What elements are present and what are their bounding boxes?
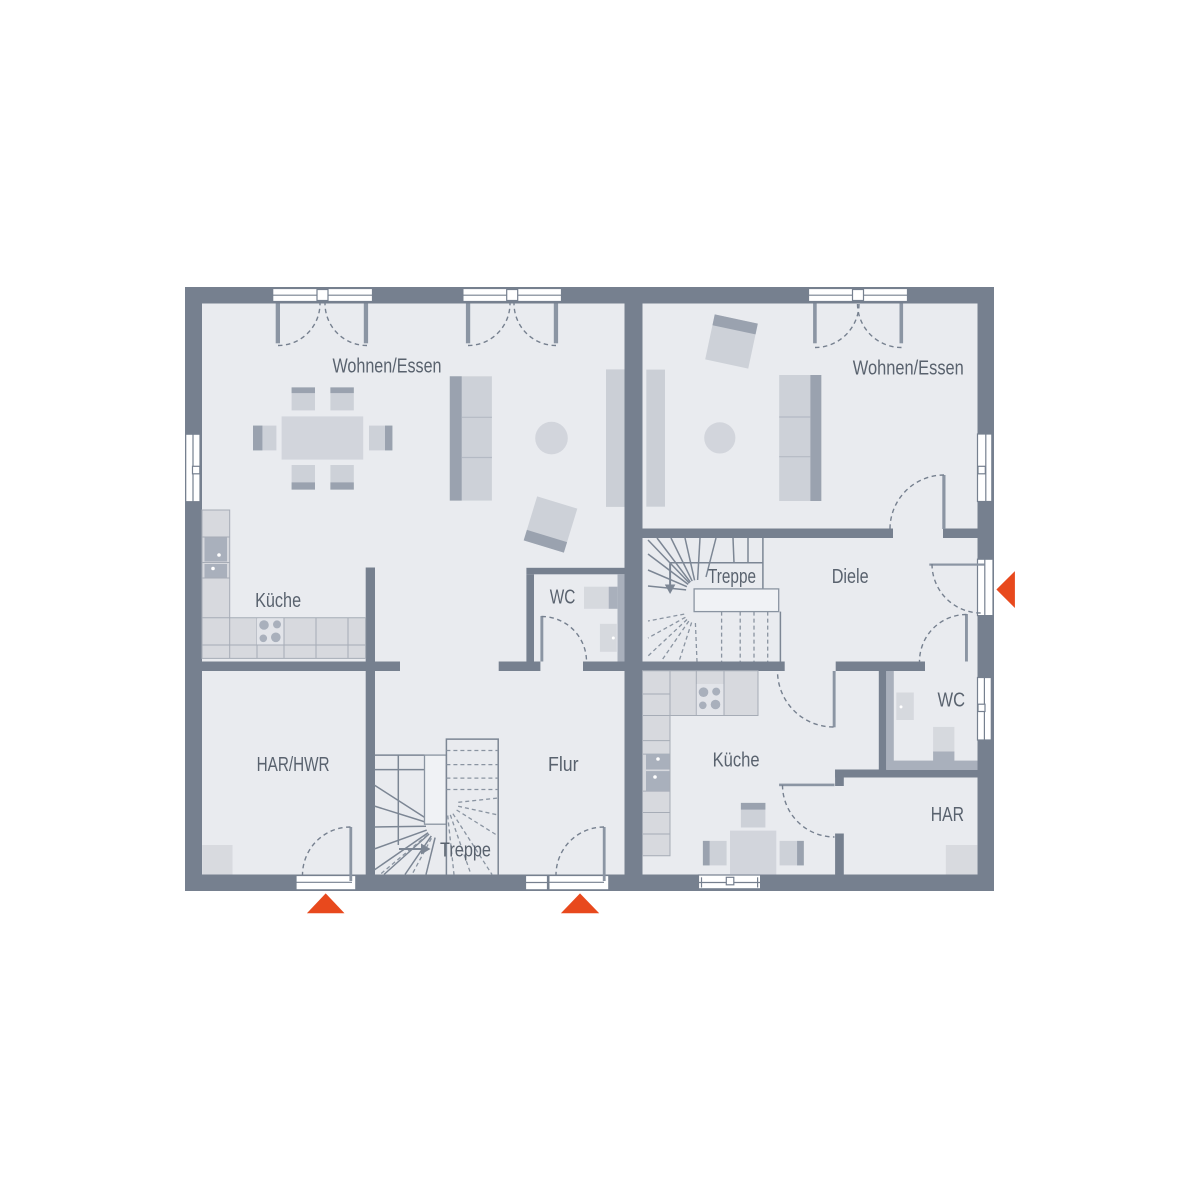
svg-text:HAR: HAR — [931, 803, 964, 826]
svg-text:HAR/HWR: HAR/HWR — [257, 753, 330, 776]
svg-text:Wohnen/Essen: Wohnen/Essen — [333, 355, 442, 378]
svg-text:Diele: Diele — [832, 565, 869, 588]
svg-text:WC: WC — [938, 688, 966, 711]
svg-text:Wohnen/Essen: Wohnen/Essen — [853, 356, 964, 379]
svg-text:Flur: Flur — [548, 753, 579, 776]
svg-text:Treppe: Treppe — [708, 565, 756, 588]
svg-text:WC: WC — [550, 585, 576, 608]
svg-text:Küche: Küche — [713, 749, 760, 772]
svg-text:Küche: Küche — [255, 589, 301, 612]
svg-text:Treppe: Treppe — [440, 839, 491, 862]
